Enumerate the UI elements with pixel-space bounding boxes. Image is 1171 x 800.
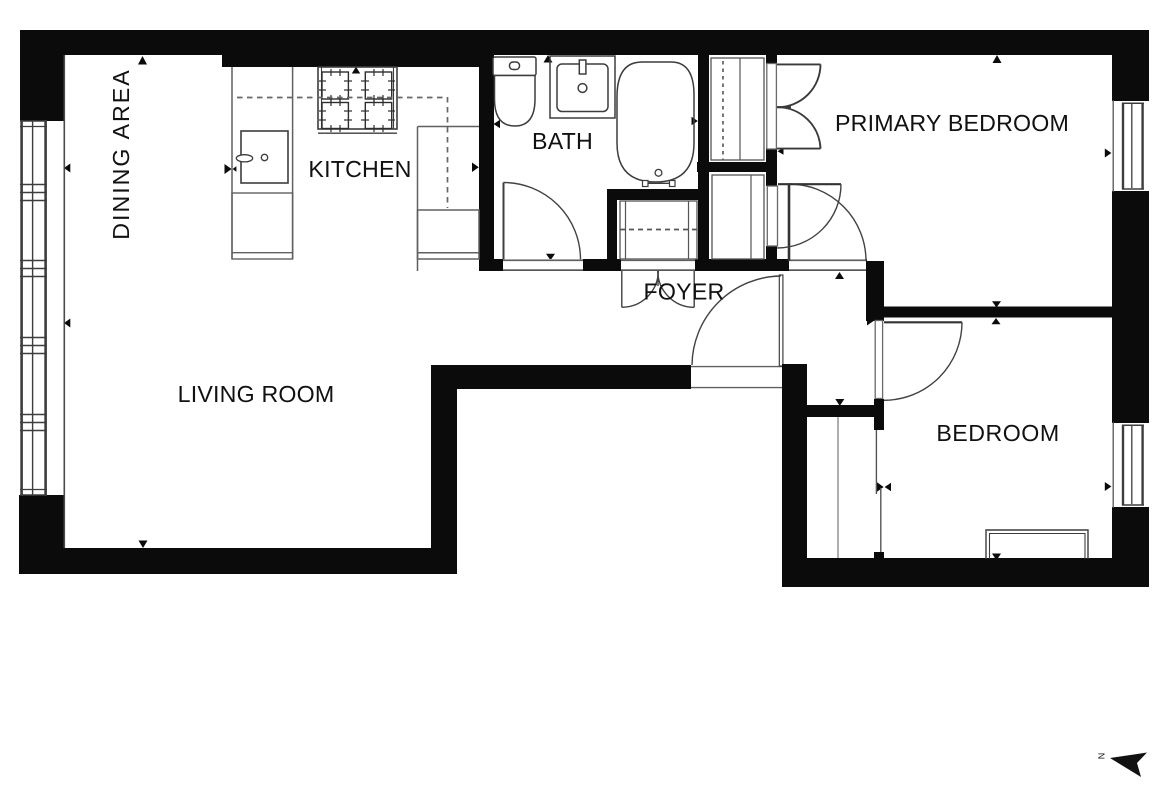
svg-text:LIVING ROOM: LIVING ROOM [178, 381, 335, 407]
svg-text:N: N [1097, 753, 1107, 760]
svg-text:BEDROOM: BEDROOM [936, 420, 1059, 446]
svg-text:KITCHEN: KITCHEN [308, 156, 411, 182]
svg-text:FOYER: FOYER [644, 279, 725, 305]
svg-text:PRIMARY BEDROOM: PRIMARY BEDROOM [835, 110, 1069, 136]
svg-text:DINING AREA: DINING AREA [108, 68, 134, 239]
svg-text:BATH: BATH [532, 128, 593, 154]
